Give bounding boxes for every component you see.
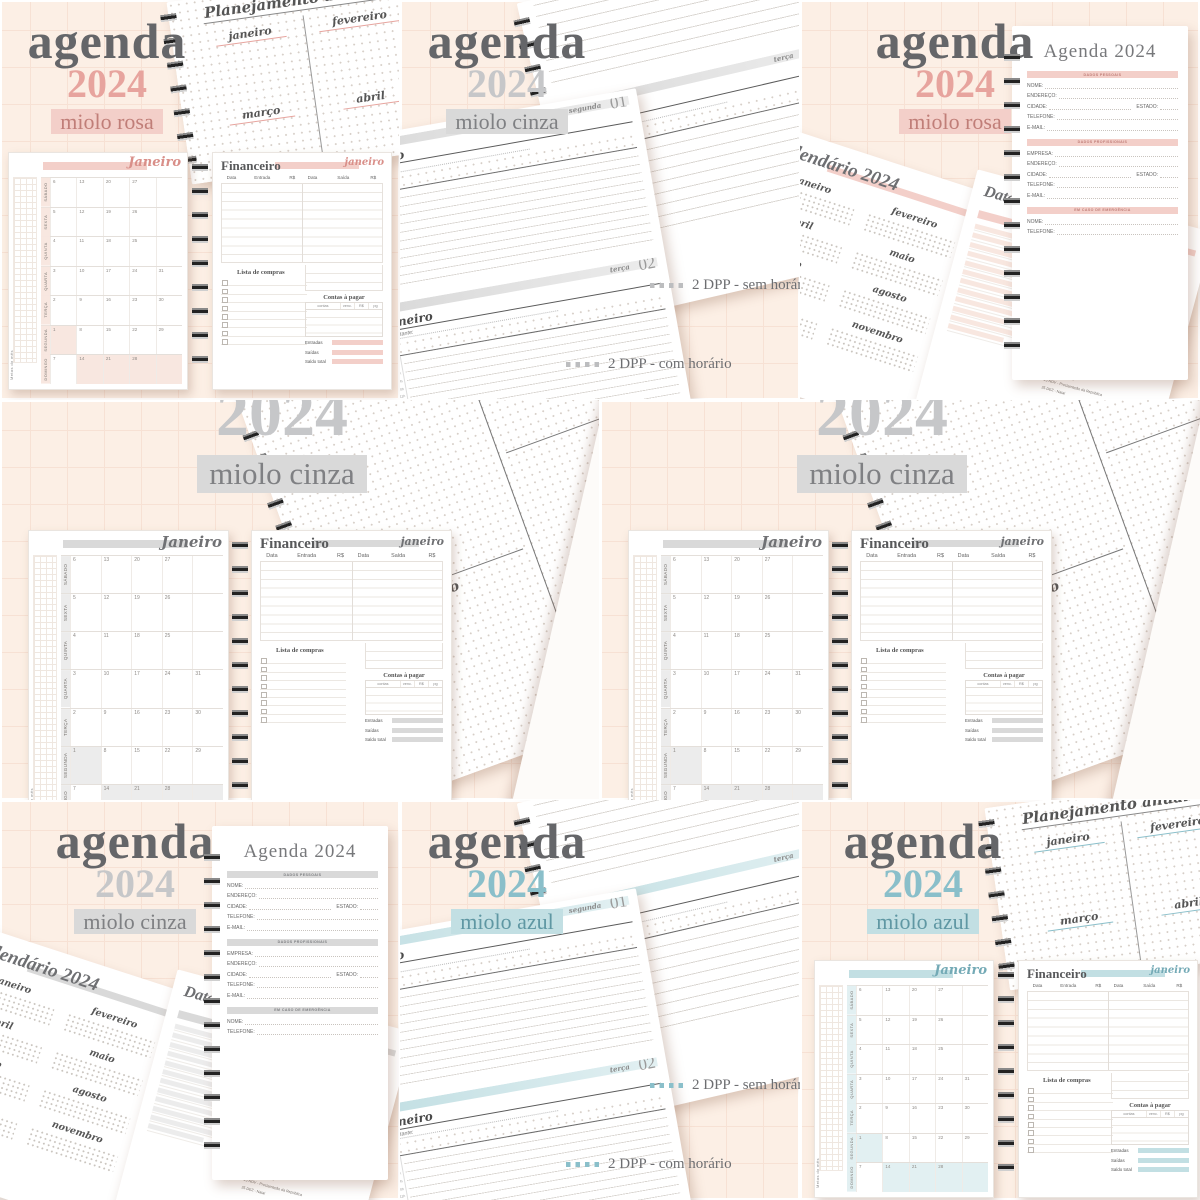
day-number: 17 — [909, 1075, 935, 1104]
checkbox-line — [221, 278, 307, 286]
weekday-label: SEGUNDA — [61, 747, 70, 784]
tile-month-finance-cinza-1: 2024 miolo cinza março abril maio Janeir… — [0, 400, 600, 800]
day-number: 26 — [935, 1016, 961, 1045]
finance-column-header: Data — [221, 175, 242, 180]
month-label: abril — [583, 400, 600, 404]
section-emergencia: EM CASO DE EMERGÊNCIA — [227, 1007, 378, 1014]
tile-info-rosa: agenda 2024 miolo rosa Calendário 2024 j… — [800, 0, 1200, 400]
day-number: 18 — [103, 237, 129, 266]
bills-title: Contas à pagar — [965, 672, 1043, 679]
leader-dots — [566, 362, 603, 367]
day-number: 16 — [731, 709, 762, 746]
checkbox-line — [221, 303, 307, 311]
day-number — [156, 178, 182, 207]
day-number: 18 — [131, 632, 162, 669]
day-number: 19 — [731, 594, 762, 631]
day-number: 19 — [103, 208, 129, 237]
day-number: 23 — [162, 709, 193, 746]
bills-column-header: R$ — [1160, 1111, 1174, 1117]
brand-block: agenda 2024 miolo cinza — [40, 818, 230, 934]
day-number: 9 — [701, 709, 732, 746]
finance-table-continued — [305, 265, 383, 291]
weekday-label: SEGUNDA — [41, 326, 50, 355]
tag-text: 2 DPP - sem horário — [692, 277, 800, 294]
day-number: 27 — [762, 556, 793, 593]
day-number: 20 — [131, 556, 162, 593]
habit-tracker-grid — [13, 177, 37, 363]
day-number: 24 — [162, 670, 193, 707]
bills-title: Contas à pagar — [1111, 1102, 1189, 1109]
section-dados-profissionais: DADOS PROFISSIONAIS — [1027, 139, 1178, 146]
day-number: 29 — [156, 326, 182, 355]
day-number: 25 — [762, 632, 793, 669]
total-bar — [332, 350, 383, 355]
total-label: Entradas — [365, 718, 392, 723]
day-number: 21 — [731, 785, 762, 800]
day-number — [192, 632, 223, 669]
field-label: CIDADE: — [227, 972, 247, 978]
day-number: 31 — [156, 267, 182, 296]
bills-column-header: R$ — [1014, 681, 1028, 687]
calendar-grid: SÁBADO6132027 SEXTA5121926 QUINTA4111825… — [661, 555, 823, 800]
bills-column-header: contas — [1112, 1111, 1146, 1117]
finance-column-header: Data — [951, 553, 975, 559]
finance-column-header: Entrada — [284, 553, 330, 559]
weekday-label: SEXTA — [661, 594, 670, 631]
month-label: abril — [342, 87, 400, 110]
month-title: Janeiro — [934, 963, 987, 978]
finance-column-header: Saída — [375, 553, 421, 559]
monthly-calendar-page: Janeiro Metas do mês SÁBADO6132027 SEXTA… — [28, 530, 229, 800]
finance-table — [221, 183, 383, 263]
finance-page: Financeiro janeiro DataEntradaR$DataSaíd… — [1018, 960, 1198, 1198]
field-label: ENDEREÇO: — [227, 961, 257, 967]
day-number: 8 — [76, 326, 102, 355]
finance-title: Financeiro — [1027, 966, 1087, 982]
day-number: 2 — [856, 1104, 882, 1133]
day-number: 5 — [70, 594, 101, 631]
miolo-label: miolo rosa — [899, 109, 1011, 134]
day-number: 28 — [162, 785, 193, 800]
total-bar — [332, 340, 383, 345]
day-number: 15 — [909, 1134, 935, 1163]
section-dados-pessoais: DADOS PESSOAIS — [227, 871, 378, 878]
bills-title: Contas à pagar — [305, 294, 383, 301]
day-number: 24 — [762, 670, 793, 707]
day-number: 17 — [731, 670, 762, 707]
day-number: 28 — [762, 785, 793, 800]
finance-month: janeiro — [345, 157, 384, 168]
miolo-label: miolo rosa — [51, 109, 163, 134]
weekday-label: DOMINGO — [61, 785, 70, 800]
finance-title: Financeiro — [221, 158, 281, 174]
brand-year: 2024 — [12, 64, 202, 105]
day-number: 5 — [50, 208, 76, 237]
side-note: Metas do mês — [815, 1118, 820, 1188]
day-number: 11 — [701, 632, 732, 669]
open-notebook-spread: Janeiro Metas do mês SÁBADO6132027 SEXTA… — [8, 150, 392, 390]
day-number: 31 — [962, 1075, 988, 1104]
finance-column-header: Entrada — [242, 175, 283, 180]
day-number: 26 — [162, 594, 193, 631]
format-tag-with-time: 2 DPP - com horário — [566, 1156, 732, 1173]
collage-row-3: agenda 2024 miolo cinza Calendário 2024 … — [0, 800, 1200, 1200]
day-number: 30 — [156, 296, 182, 325]
brand-title: agenda — [412, 818, 602, 864]
hour-label: 11h — [400, 1194, 408, 1200]
day-number: 20 — [103, 178, 129, 207]
day-number: 7 — [50, 355, 76, 384]
calendar-grid: SÁBADO6132027 SEXTA5121926 QUINTA4111825… — [847, 985, 988, 1192]
day-number: 30 — [192, 709, 223, 746]
section-emergencia: EM CASO DE EMERGÊNCIA — [1027, 207, 1178, 214]
finance-table — [860, 561, 1043, 641]
weekday: terça — [773, 851, 795, 864]
day-number: 23 — [129, 296, 155, 325]
total-label: Saldo total — [365, 737, 392, 742]
field-label: ENDEREÇO: — [1027, 161, 1057, 167]
habit-tracker-grid — [819, 985, 843, 1171]
finance-column-header: Data — [351, 553, 375, 559]
miolo-label: miolo cinza — [197, 455, 366, 493]
day-number: 18 — [731, 632, 762, 669]
calendar-week-row: DOMINGO7142128 — [41, 354, 182, 384]
bills-column-header: contas — [366, 681, 400, 687]
checkbox-line — [221, 295, 307, 303]
field-label: E-MAIL: — [227, 993, 245, 999]
day-number — [962, 986, 988, 1015]
day-number: 21 — [103, 355, 129, 384]
weekday-label: SEGUNDA — [661, 747, 670, 784]
finance-column-header: Saída — [975, 553, 1021, 559]
leader-dots — [650, 1083, 687, 1088]
finance-table — [1027, 991, 1189, 1071]
bills-column-header: contas — [306, 303, 340, 309]
finance-table — [260, 561, 443, 641]
day-number: 6 — [50, 178, 76, 207]
finance-column-header: R$ — [421, 553, 443, 559]
field-label: CIDADE: — [1027, 172, 1047, 178]
brand-block: agenda 2024 miolo cinza — [412, 18, 602, 134]
side-note: Metas do mês — [29, 748, 34, 800]
open-notebook-spread: Janeiro Metas do mês SÁBADO6132027 SEXTA… — [28, 528, 452, 800]
day-number — [792, 785, 823, 800]
shopping-list-title: Lista de compras — [1043, 1077, 1113, 1084]
day-number: 13 — [76, 178, 102, 207]
day-number: 29 — [792, 747, 823, 784]
day-number: 17 — [131, 670, 162, 707]
finance-column-header: Data — [860, 553, 884, 559]
day-number: 29 — [962, 1134, 988, 1163]
day-number: 10 — [882, 1075, 908, 1104]
brand-year: 2024 — [828, 864, 1018, 905]
day-number: 8 — [101, 747, 132, 784]
field-label: ENDEREÇO: — [227, 893, 257, 899]
bills-section: Contas à pagar contasvenc.R$pg Entradas … — [1111, 1073, 1189, 1192]
shopping-list: Lista de compras — [860, 647, 946, 723]
weekday-label: SÁBADO — [61, 556, 70, 593]
format-tag-no-time: 2 DPP - sem horário — [650, 1077, 800, 1094]
weekday-label: QUARTA — [61, 670, 70, 707]
bills-column-header: venc. — [1146, 1111, 1160, 1117]
weekday-label: TERÇA — [41, 296, 50, 325]
finance-column-header: R$ — [330, 553, 352, 559]
day-number: 4 — [70, 632, 101, 669]
miolo-label: miolo azul — [867, 909, 978, 934]
day-number: 18 — [909, 1045, 935, 1074]
checkbox-line — [221, 337, 307, 345]
brand-year: 2024 — [40, 864, 230, 905]
bills-column-header: pg — [1174, 1111, 1188, 1117]
collage-row-2: 2024 miolo cinza março abril maio Janeir… — [0, 400, 1200, 800]
day-number: 27 — [162, 556, 193, 593]
day-number: 12 — [76, 208, 102, 237]
calendar-week-row: TERÇA29162330 — [41, 295, 182, 325]
day-number: 13 — [101, 556, 132, 593]
day-number: 4 — [670, 632, 701, 669]
total-label: Saldo total — [305, 359, 332, 364]
bills-section: Contas à pagar contasvenc.R$pg Entradas … — [365, 643, 443, 800]
collage-row-1: agenda 2024 miolo rosa Planejamento anua… — [0, 0, 1200, 400]
weekday-label: QUINTA — [61, 632, 70, 669]
day-number: 1 — [50, 326, 76, 355]
finance-page: Financeiro janeiro DataEntradaR$DataSaíd… — [251, 530, 452, 800]
day-number: 22 — [935, 1134, 961, 1163]
finance-column-header: R$ — [1170, 983, 1189, 988]
calendar-week-row: SEGUNDA18152229 — [41, 325, 182, 355]
leader-dots — [650, 283, 687, 288]
finance-table-continued — [1111, 1073, 1189, 1099]
day-number: 3 — [670, 670, 701, 707]
day-number — [962, 1045, 988, 1074]
finance-column-headers: DataEntradaR$DataSaídaR$ — [221, 175, 383, 180]
weekday: terça — [773, 51, 795, 64]
day-number: 7 — [70, 785, 101, 800]
field-label: CIDADE: — [227, 904, 247, 910]
day-number — [962, 1016, 988, 1045]
field-label: ESTADO: — [1136, 104, 1158, 110]
spiral-binding — [204, 850, 220, 1156]
finance-column-header: Entrada — [884, 553, 930, 559]
planner-month-grid: janeiro fevereiro março abril — [1013, 806, 1200, 983]
day-number: 9 — [101, 709, 132, 746]
brand-block: 2024 miolo cinza — [712, 400, 1052, 493]
finance-column-header: Data — [260, 553, 284, 559]
month-label: janeiro — [214, 22, 287, 47]
brand-title: agenda — [828, 818, 1018, 864]
bills-column-header: venc. — [1000, 681, 1014, 687]
total-label: Saídas — [965, 728, 992, 733]
day-number: 13 — [882, 986, 908, 1015]
day-number — [792, 632, 823, 669]
field-label: EMPRESA: — [227, 951, 253, 957]
day-number: 14 — [882, 1163, 908, 1192]
day-number — [192, 785, 223, 800]
bills-column-header: R$ — [414, 681, 428, 687]
monthly-calendar-page: Janeiro Metas do mês SÁBADO6132027 SEXTA… — [8, 152, 188, 390]
finance-month: janeiro — [401, 535, 444, 548]
bills-table — [1111, 1117, 1189, 1145]
brand-year: 2024 — [712, 400, 1052, 447]
day-number: 19 — [131, 594, 162, 631]
day-number: 12 — [101, 594, 132, 631]
tile-cover-azul: agenda 2024 miolo azul Planejamento anua… — [800, 800, 1200, 1200]
day-number: 14 — [101, 785, 132, 800]
field-label: ESTADO: — [1136, 172, 1158, 178]
finance-column-header: Saída — [1129, 983, 1170, 988]
day-number: 26 — [129, 208, 155, 237]
day-number: 6 — [670, 556, 701, 593]
month-label: fevereiro — [1135, 812, 1200, 838]
monthly-calendar-page: Janeiro Metas do mês SÁBADO6132027 SEXTA… — [628, 530, 829, 800]
finance-column-header: R$ — [364, 175, 383, 180]
leader-dots — [566, 1162, 603, 1167]
day-number — [792, 594, 823, 631]
checkbox-line — [221, 286, 307, 294]
weekday-label: QUINTA — [41, 237, 50, 266]
day-number — [156, 237, 182, 266]
brand-year: 2024 — [412, 64, 602, 105]
bills-column-header: venc. — [340, 303, 354, 309]
day-number: 22 — [162, 747, 193, 784]
format-tag-with-time: 2 DPP - com horário — [566, 356, 732, 373]
tile-info-cinza: agenda 2024 miolo cinza Calendário 2024 … — [0, 800, 400, 1200]
shopping-list-title: Lista de compras — [237, 269, 307, 276]
side-note: Metas do mês — [629, 748, 634, 800]
finance-column-header: Data — [1108, 983, 1129, 988]
brand-block: 2024 miolo cinza — [112, 400, 452, 493]
day-number: 7 — [670, 785, 701, 800]
day-number: 28 — [935, 1163, 961, 1192]
weekday-label: TERÇA — [61, 709, 70, 746]
weekday-label: QUINTA — [847, 1045, 856, 1074]
day-number: 10 — [701, 670, 732, 707]
shopping-list: Lista de compras — [260, 647, 346, 723]
field-label: NOME: — [1027, 219, 1043, 225]
tile-daily-azul: agenda 2024 miolo azul segunda01 janeiro… — [400, 800, 800, 1200]
finance-column-header: R$ — [1021, 553, 1043, 559]
weekday-label: DOMINGO — [661, 785, 670, 800]
weekday-label: QUARTA — [41, 267, 50, 296]
finance-table-continued — [965, 643, 1043, 669]
bills-column-header: R$ — [354, 303, 368, 309]
day-number: 16 — [131, 709, 162, 746]
finance-column-header: Data — [1027, 983, 1048, 988]
day-number: 21 — [131, 785, 162, 800]
day-number: 24 — [129, 267, 155, 296]
day-number — [792, 556, 823, 593]
day-number: 28 — [129, 355, 155, 384]
spiral-binding — [192, 160, 208, 380]
tag-text: 2 DPP - com horário — [608, 1156, 732, 1173]
habit-tracker-grid — [633, 555, 657, 800]
bills-column-header: venc. — [400, 681, 414, 687]
total-label: Entradas — [1111, 1148, 1138, 1153]
brand-year: 2024 — [112, 400, 452, 447]
weekday: terça — [609, 262, 630, 274]
weekday-label: QUARTA — [661, 670, 670, 707]
weekday-label: SEGUNDA — [847, 1134, 856, 1163]
bills-section: Contas à pagar contasvenc.R$pg Entradas … — [965, 643, 1043, 800]
day-number: 3 — [70, 670, 101, 707]
day-number: 20 — [731, 556, 762, 593]
brand-title: agenda — [860, 18, 1050, 64]
day-number: 11 — [882, 1045, 908, 1074]
month-label: março — [1045, 908, 1113, 932]
weekday-label: TERÇA — [847, 1104, 856, 1133]
tile-cover-rosa: agenda 2024 miolo rosa Planejamento anua… — [0, 0, 400, 400]
bills-column-headers: contasvenc.R$pg — [305, 302, 383, 309]
section-dados-profissionais: DADOS PROFISSIONAIS — [227, 939, 378, 946]
weekday-label: DOMINGO — [41, 355, 50, 384]
brand-block: agenda 2024 miolo rosa — [860, 18, 1050, 134]
weekday-label: TERÇA — [661, 709, 670, 746]
checkbox-line — [221, 328, 307, 336]
agenda-2024-title: Agenda 2024 — [212, 841, 388, 863]
day-number: 15 — [103, 326, 129, 355]
finance-month: janeiro — [1151, 965, 1190, 976]
weekday-label: SÁBADO — [661, 556, 670, 593]
month-label: fevereiro — [317, 6, 400, 32]
day-number: 19 — [909, 1016, 935, 1045]
day-number — [156, 355, 182, 384]
miolo-label: miolo azul — [451, 909, 562, 934]
bills-column-header: contas — [966, 681, 1000, 687]
month-title: Janeiro — [161, 533, 222, 551]
month-label: abril — [1160, 893, 1200, 916]
weekday-label: SÁBADO — [41, 178, 50, 207]
day-number: 16 — [103, 296, 129, 325]
bills-column-header: pg — [1028, 681, 1042, 687]
day-number: 1 — [70, 747, 101, 784]
brand-year: 2024 — [412, 864, 602, 905]
field-label: ESTADO: — [336, 972, 358, 978]
brand-title: agenda — [40, 818, 230, 864]
shopping-list: Lista de compras — [1027, 1077, 1113, 1153]
calendar-grid: SÁBADO6132027 SEXTA5121926 QUINTA4111825… — [61, 555, 223, 800]
day-number: 30 — [962, 1104, 988, 1133]
day-number: 3 — [50, 267, 76, 296]
day-number: 23 — [935, 1104, 961, 1133]
day-number: 31 — [192, 670, 223, 707]
day-number: 5 — [670, 594, 701, 631]
day-number: 21 — [909, 1163, 935, 1192]
bills-column-header: pg — [428, 681, 442, 687]
tile-daily-cinza: agenda 2024 miolo cinza segunda01 janeir… — [400, 0, 800, 400]
brand-block: agenda 2024 miolo rosa — [12, 18, 202, 134]
brand-year: 2024 — [860, 64, 1050, 105]
spiral-binding — [1004, 50, 1020, 356]
day-number — [962, 1163, 988, 1192]
day-number — [192, 594, 223, 631]
day-number: 6 — [70, 556, 101, 593]
day-number: 15 — [731, 747, 762, 784]
field-label: ESTADO: — [336, 904, 358, 910]
day-number: 20 — [909, 986, 935, 1015]
day-number: 23 — [762, 709, 793, 746]
bills-title: Contas à pagar — [365, 672, 443, 679]
total-label: Saldo total — [965, 737, 992, 742]
day-number: 4 — [50, 237, 76, 266]
day-number: 17 — [103, 267, 129, 296]
day-number: 1 — [670, 747, 701, 784]
finance-title: Financeiro — [860, 536, 929, 553]
format-tag-no-time: 2 DPP - sem horário — [650, 277, 800, 294]
day-number — [192, 556, 223, 593]
tag-text: 2 DPP - com horário — [608, 356, 732, 373]
tag-text: 2 DPP - sem horário — [692, 1077, 800, 1094]
spiral-binding — [832, 538, 848, 800]
